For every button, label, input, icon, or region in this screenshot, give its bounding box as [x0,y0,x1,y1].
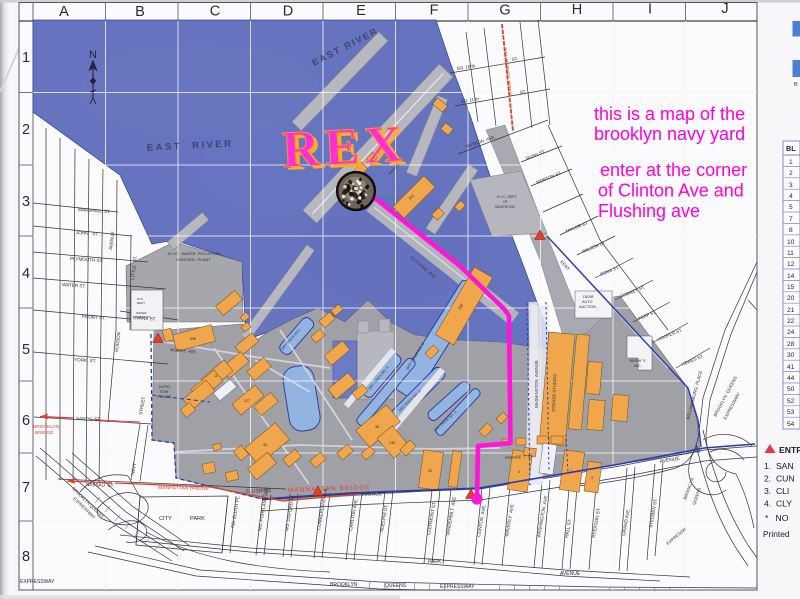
svg-text:ST.: ST. [511,56,518,62]
svg-text:14: 14 [787,273,795,280]
svg-text:41: 41 [787,364,795,371]
svg-text:ENTR: ENTR [779,445,800,455]
svg-text:BROOKLYN: BROOKLYN [33,424,60,430]
svg-text:PRECINCT: PRECINCT [135,315,151,319]
svg-text:F: F [430,3,439,19]
svg-text:4: 4 [518,470,520,474]
svg-text:EXPRESSWAY: EXPRESSWAY [440,584,475,590]
svg-text:C: C [210,4,220,20]
svg-text:135: 135 [389,441,395,445]
svg-text:1: 1 [22,50,30,66]
svg-text:6: 6 [22,413,30,429]
svg-text:PARK: PARK [190,516,205,522]
svg-text:1: 1 [789,159,793,166]
svg-text:3: 3 [591,476,593,480]
svg-text:brooklyn navy yard: brooklyn navy yard [594,124,745,144]
svg-text:2. CUN: 2. CUN [764,474,795,484]
svg-text:of Clinton Ave and: of Clinton Ave and [598,181,744,201]
svg-text:PARK: PARK [428,559,442,565]
svg-text:92: 92 [428,469,432,473]
svg-text:52: 52 [787,398,795,405]
svg-text:2: 2 [22,122,30,138]
svg-text:15: 15 [787,284,795,291]
svg-text:2: 2 [789,170,793,177]
svg-text:11: 11 [214,374,218,378]
svg-text:21: 21 [787,307,795,314]
svg-text:7: 7 [789,216,793,223]
svg-text:OF: OF [503,200,508,204]
svg-text:1. SAN: 1. SAN [764,461,794,471]
svg-text:10: 10 [787,239,795,246]
svg-text:E: E [356,3,366,19]
svg-text:8: 8 [22,549,30,565]
svg-text:J: J [721,1,728,17]
svg-text:4. CLY: 4. CLY [764,499,792,509]
svg-text:598: 598 [190,337,196,341]
svg-text:INC.: INC. [634,364,642,368]
svg-text:BRIDGE: BRIDGE [35,430,53,436]
svg-text:REX: REX [281,116,409,179]
svg-text:QUEENS: QUEENS [385,583,407,589]
svg-text:38: 38 [375,425,379,429]
svg-text:H: H [572,2,582,18]
svg-text:this is a map of the: this is a map of the [594,104,745,124]
svg-text:B: B [135,4,145,20]
svg-text:11: 11 [787,250,794,257]
svg-text:53: 53 [787,409,795,416]
svg-text:BEKW' S: BEKW' S [630,359,646,363]
svg-text:BROOKLYN: BROOKLYN [330,582,358,588]
svg-text:N.Y.C. WATER POLLUTION: N.Y.C. WATER POLLUTION [168,251,220,256]
svg-text:A: A [59,4,69,20]
svg-text:5: 5 [789,204,793,211]
svg-text:DEPT: DEPT [137,301,145,305]
svg-text:AVENUE: AVENUE [560,571,581,577]
svg-text:Flushing ave: Flushing ave [598,201,700,221]
svg-text:20: 20 [787,295,795,302]
svg-text:ST.: ST. [519,89,526,95]
svg-text:NASSAU ST.: NASSAU ST. [86,482,114,488]
svg-text:3: 3 [22,194,30,210]
svg-text:AUTO: AUTO [582,300,593,304]
svg-text:3: 3 [789,182,793,189]
svg-text:22: 22 [787,318,795,325]
svg-text:24: 24 [787,329,795,336]
svg-text:54: 54 [787,421,795,428]
svg-text:43: 43 [263,443,267,447]
svg-text:N: N [89,49,97,61]
svg-text:BL: BL [786,144,796,153]
svg-text:2: 2 [570,470,572,474]
svg-text:28: 28 [787,341,795,348]
svg-text:4: 4 [789,193,793,200]
svg-text:AUCTION: AUCTION [579,305,596,309]
svg-text:127: 127 [244,399,250,403]
svg-text:POUND: POUND [157,394,172,399]
svg-text:DEAR: DEAR [583,295,594,299]
svg-text:44: 44 [787,375,795,382]
svg-text:G: G [499,3,510,19]
svg-text:3. CLI: 3. CLI [764,486,789,496]
svg-text:AVENUE: AVENUE [362,491,383,498]
svg-text:CITY: CITY [159,516,172,522]
svg-text:5: 5 [22,342,30,358]
svg-text:D: D [283,4,293,20]
svg-text:I: I [648,2,652,18]
svg-text:CONTROL PLANT: CONTROL PLANT [176,257,211,262]
svg-text:B: B [794,82,798,88]
svg-text:4: 4 [22,266,30,282]
svg-text:N.Y.C. DEPT.: N.Y.C. DEPT. [497,195,517,199]
svg-text:EXPRESSWAY: EXPRESSWAY [20,579,55,585]
svg-text:SANITATION: SANITATION [495,205,515,209]
svg-text:7: 7 [22,480,30,496]
svg-text:8: 8 [789,227,793,234]
svg-text:enter at the corner: enter at the corner [600,160,747,180]
svg-text:MANHATTAN BRIDGE: MANHATTAN BRIDGE [158,485,210,492]
svg-text:30: 30 [787,352,795,359]
svg-text:12: 12 [787,261,795,268]
svg-text:WASHINGTON AVENUE: WASHINGTON AVENUE [534,360,539,408]
svg-text:* NO: * NO [765,513,789,523]
svg-text:Printed: Printed [763,529,790,539]
svg-text:50: 50 [787,386,795,393]
svg-text:SANDS ST.: SANDS ST. [76,416,101,422]
